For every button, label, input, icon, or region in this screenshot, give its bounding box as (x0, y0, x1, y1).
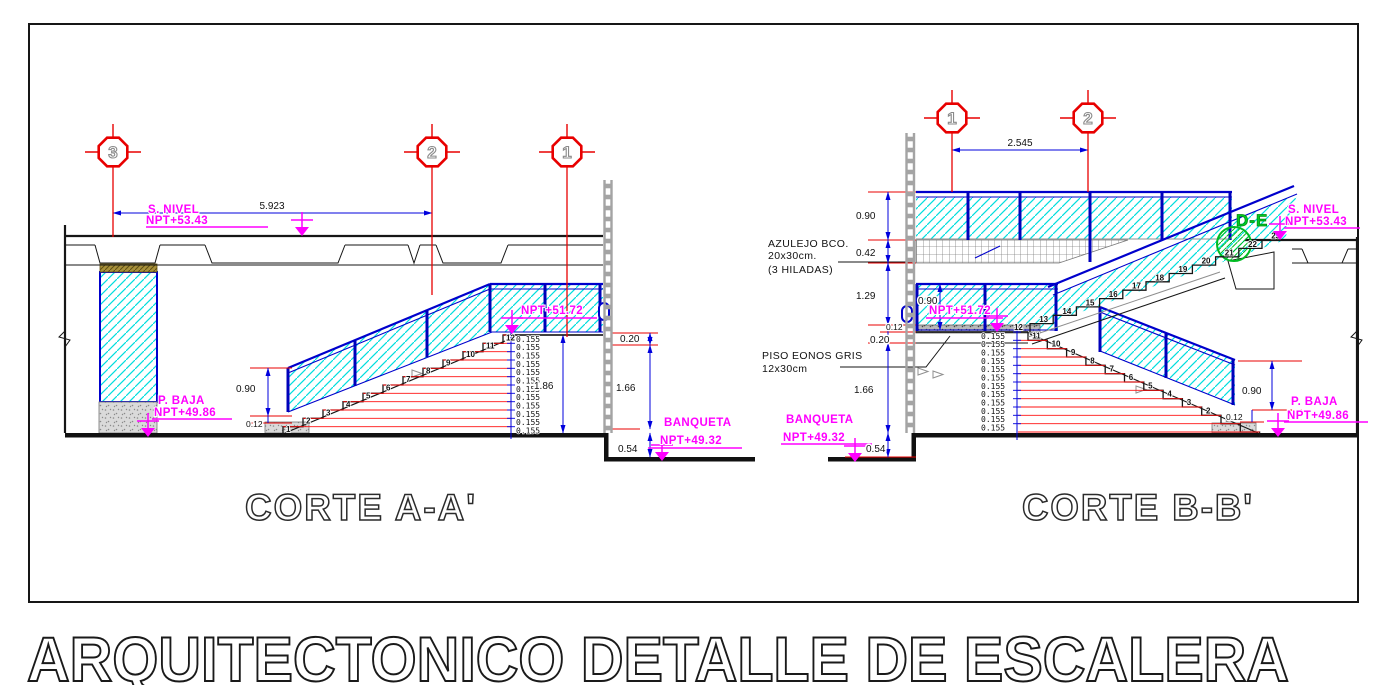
step-number: 3 (1187, 398, 1192, 407)
p-baja-value-b: NPT+49.86 (1287, 410, 1349, 422)
step-number: 1 (286, 425, 291, 434)
generated-corte-b: 0.155120.155110.155100.15590.15580.15570… (844, 90, 1292, 462)
step-number: 20 (1202, 257, 1211, 266)
azulejo-note-3: (3 HILADAS) (768, 264, 833, 276)
void-triangle-b1 (918, 368, 928, 375)
mid-level-label-b: NPT+51.72 (929, 305, 991, 317)
step-number: 11 (1032, 331, 1041, 340)
step-number: 22 (1248, 240, 1257, 249)
dim-curb-a: 0.12 (246, 419, 263, 429)
step-number: 10 (466, 350, 475, 359)
grid-bubble-number: 1 (947, 109, 956, 128)
banqueta-value-b: NPT+49.32 (783, 432, 845, 444)
s-nivel-label-b: S. NIVEL (1288, 204, 1339, 216)
dim-total-rise-a: 1.86 (534, 381, 554, 392)
step-number: 15 (1086, 298, 1095, 307)
step-number: 5 (366, 392, 371, 401)
step-number: 8 (426, 367, 431, 376)
void-triangle-b2 (933, 371, 943, 378)
s-nivel-value-a: NPT+53.43 (146, 215, 208, 227)
sheet-title: ARQUITECTONICO DETALLE DE ESCALERA (27, 625, 1289, 685)
step-number: 12 (506, 333, 515, 342)
dim-banqueta-drop-b: 0.54 (866, 444, 886, 455)
piso-note-2: 12x30cm (762, 363, 807, 375)
step-number: 2 (306, 417, 311, 426)
dim-banqueta-drop-a: 0.54 (618, 444, 638, 455)
banqueta-label-b: BANQUETA (786, 414, 854, 426)
step-number: 3 (326, 408, 331, 417)
step-number: 6 (1129, 373, 1134, 382)
step-number: 10 (1052, 340, 1061, 349)
banqueta-label-a: BANQUETA (664, 417, 732, 429)
step-number: 12 (1014, 323, 1023, 332)
dim-storey-b: 1.66 (854, 385, 874, 396)
caption-corte-b: CORTE B-B' (1022, 487, 1254, 528)
step-number: 18 (1155, 273, 1164, 282)
dim-slab-edge-a: 0.20 (620, 334, 640, 345)
step-number: 17 (1132, 282, 1141, 291)
riser-dim-label: 0.155 (981, 424, 1005, 433)
mid-level-label-a: NPT+51.72 (521, 305, 583, 317)
azulejo-note-2: 20x30cm. (768, 250, 817, 262)
dim-mid-height-b: 1.29 (856, 291, 876, 302)
grid-bubble-number: 2 (427, 143, 436, 162)
step-number: 7 (406, 375, 411, 384)
dim-span-a: 5.923 (259, 201, 284, 212)
ribbed-slab-a (65, 236, 603, 265)
banqueta-value-a: NPT+49.32 (660, 435, 722, 447)
step-number: 8 (1090, 356, 1095, 365)
step-number: 6 (386, 383, 391, 392)
step-number: 4 (346, 400, 351, 409)
step-number: 16 (1109, 290, 1118, 299)
dim-lower-rail-b: 0.90 (1242, 386, 1262, 397)
s-nivel-value-b: NPT+53.43 (1285, 216, 1347, 228)
window-glass-a (100, 272, 157, 402)
dim-tile-rows-b: 0.42 (856, 248, 876, 259)
step-number: 21 (1225, 248, 1234, 257)
level-marker-arrow (295, 227, 309, 236)
corte-a-drawing (59, 213, 755, 462)
step-number: 13 (1039, 315, 1048, 324)
dim-upper-rail-b: 0.90 (856, 211, 876, 222)
dim-slab-edge-b: 0.20 (870, 335, 890, 346)
step-number: 19 (1178, 265, 1187, 274)
piso-note-1: PISO EONOS GRIS (762, 350, 863, 362)
dim-rail-height-a: 0.90 (236, 384, 256, 395)
upper-landing-glass-b (916, 197, 1232, 239)
azulejo-tile-band-b (916, 240, 1128, 263)
step-number: 9 (1071, 348, 1076, 357)
step-number: 5 (1148, 381, 1153, 390)
caption-corte-a: CORTE A-A' (245, 487, 477, 528)
riser-dim-label: 0.155 (516, 427, 540, 436)
azulejo-note-1: AZULEJO BCO. (768, 238, 849, 250)
grid-bubble-number: 1 (562, 143, 571, 162)
detail-circle-d-e (1217, 227, 1251, 261)
step-number: 9 (446, 358, 451, 367)
dim-span-b: 2.545 (1007, 138, 1032, 149)
dim-lower-curb-b: 0.12 (1226, 412, 1243, 422)
step-number: 7 (1110, 365, 1115, 374)
step-number: 4 (1167, 390, 1172, 399)
step-number: 14 (1062, 307, 1071, 316)
grid-bubble-number: 2 (1083, 109, 1092, 128)
void-triangle-b3 (1136, 386, 1146, 393)
p-baja-label-b: P. BAJA (1291, 396, 1338, 408)
p-baja-label-a: P. BAJA (158, 395, 205, 407)
dim-landing-rail-b: 0.90 (918, 296, 938, 307)
step-number: 11 (486, 342, 495, 351)
detail-ref-d-e: D-E (1236, 211, 1268, 230)
dim-storey-a: 1.66 (616, 383, 636, 394)
grid-bubble-number: 3 (108, 143, 117, 162)
dim-landing-slab-b: 0.12 (886, 322, 903, 332)
step-number: 2 (1206, 406, 1211, 415)
cad-stair-detail-drawing: 0.15510.15520.15530.15540.15550.15560.15… (0, 0, 1375, 685)
p-baja-value-a: NPT+49.86 (154, 407, 216, 419)
